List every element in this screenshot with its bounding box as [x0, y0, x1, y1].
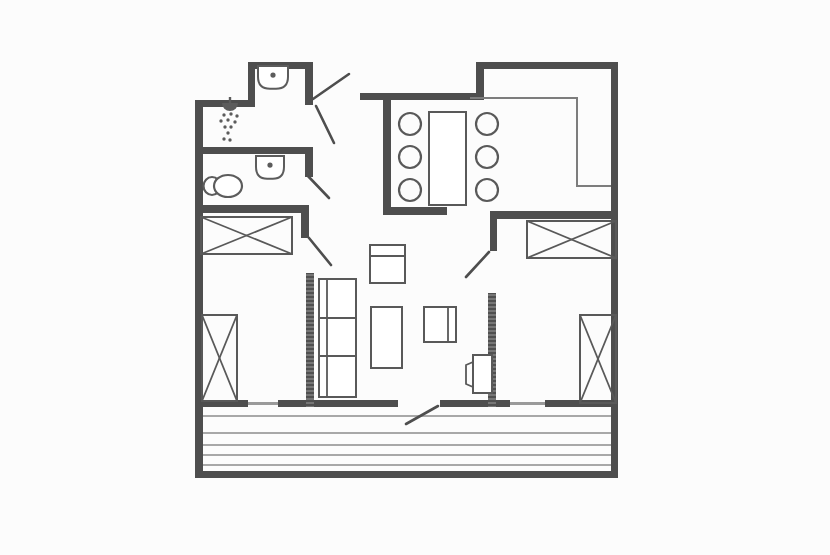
outer-left-wall [195, 100, 203, 478]
shower-head-spray-6 [233, 120, 236, 123]
shower-head-spray-10 [222, 137, 225, 140]
right-bedroom-top-wall [490, 211, 618, 219]
toilet-bowl [214, 175, 242, 197]
right-bedroom-left-wall-upper [490, 211, 497, 251]
terrace-door [406, 406, 438, 424]
shower-head-spray-1 [222, 113, 225, 116]
bottom-wall-segment-3 [440, 400, 510, 407]
bathroom-washbasin-tap [267, 163, 272, 168]
dining-left-wall [383, 100, 391, 207]
top-right-wall [476, 62, 618, 69]
coffee-table [371, 307, 402, 368]
bathroom-right-wall [305, 147, 313, 177]
kitchen-counter-outline [470, 98, 611, 186]
floor-plan-canvas [0, 0, 830, 555]
bottom-wall-segment-2 [278, 400, 398, 407]
shower-head-spray-4 [219, 119, 222, 122]
deck-front-wall [195, 471, 618, 478]
shower-head [222, 103, 238, 111]
bathroom-door [307, 175, 329, 198]
shower-head-spray-7 [223, 125, 226, 128]
sofa [319, 279, 356, 397]
dining-chair-5 [476, 146, 498, 168]
dining-chair-2 [399, 146, 421, 168]
dining-chair-3 [399, 179, 421, 201]
tv-chair [424, 307, 456, 342]
dining-chair-6 [476, 179, 498, 201]
shower-head-spray-11 [228, 138, 231, 141]
armchair [370, 245, 405, 283]
left-bedroom-window [248, 402, 278, 405]
bathroom-bedroom-divider-wall [195, 205, 308, 213]
right-bedroom-window [510, 402, 545, 405]
outer-right-wall [611, 62, 618, 478]
floor-plan-svg [0, 0, 830, 555]
shower-head-spray-9 [226, 131, 229, 134]
dining-chair-4 [476, 113, 498, 135]
dining-chair-1 [399, 113, 421, 135]
right-bedroom-door [466, 252, 489, 277]
top-middle-wall [360, 93, 483, 100]
side-unit-front [466, 362, 473, 387]
dining-bottom-wall [383, 207, 447, 215]
shower-head-spray-2 [229, 112, 232, 115]
shower-room-door [316, 106, 334, 143]
shower-head-spray-3 [235, 114, 238, 117]
side-unit [473, 355, 492, 393]
dining-table [429, 112, 466, 205]
left-bedroom-door [309, 238, 331, 265]
shower-head-spray-5 [226, 118, 229, 121]
entrance-door [313, 74, 349, 99]
shower-bathroom-divider-wall [195, 147, 312, 154]
hall-washbasin-tap [270, 73, 275, 78]
left-bedroom-right-wall-upper [301, 205, 309, 238]
shower-head-spray-8 [229, 125, 232, 128]
left-bedroom-right-wall-lower [306, 273, 314, 407]
